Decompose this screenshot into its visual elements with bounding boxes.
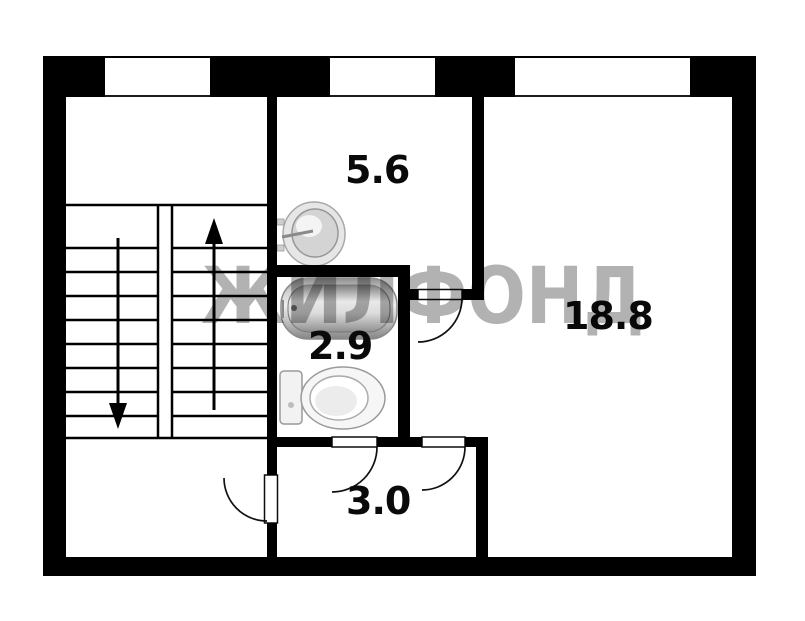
sink-icon [277, 202, 345, 266]
staircase [66, 205, 267, 438]
window-2 [330, 56, 435, 97]
wall-hallway-top-2 [377, 437, 422, 447]
stairwell-door-swing [224, 478, 267, 521]
wall-bathroom-top [277, 265, 410, 277]
wall-stairwell-upper [267, 97, 277, 475]
window-3 [515, 56, 690, 97]
wall-bathroom-right [398, 265, 410, 447]
wall-kitchen-door-stub-left [410, 289, 418, 300]
room-area-label-living-room: 18.8 [563, 297, 653, 335]
wall-kitchen-door-stub-right [462, 289, 484, 300]
floor-plan: 5.6 18.8 2.9 3.0 ЖИЛФОНД [0, 0, 805, 621]
bathroom-door-leaf [332, 437, 377, 447]
wall-hallway-right [476, 437, 488, 557]
room-area-label-hallway: 3.0 [346, 482, 410, 520]
wall-left [43, 56, 66, 576]
wall-kitchen-living [472, 97, 484, 300]
kitchen-door-leaf [418, 290, 462, 300]
room-area-label-kitchen: 5.6 [345, 151, 409, 189]
wall-stairwell-lower [267, 523, 277, 557]
toilet-icon [280, 367, 385, 429]
window-1 [105, 56, 210, 97]
wall-hallway-top-1 [277, 437, 332, 447]
stair-steps-left [66, 248, 157, 416]
wall-right [732, 56, 756, 576]
hallway-door-swing [422, 447, 465, 490]
room-area-label-bathroom: 2.9 [308, 327, 372, 365]
wall-bottom [43, 557, 756, 576]
stairwell-door-leaf [265, 475, 278, 523]
hallway-door-leaf [422, 437, 465, 447]
down-arrow-icon [109, 238, 127, 429]
stair-steps-right [173, 248, 267, 416]
kitchen-door-swing [418, 298, 462, 342]
